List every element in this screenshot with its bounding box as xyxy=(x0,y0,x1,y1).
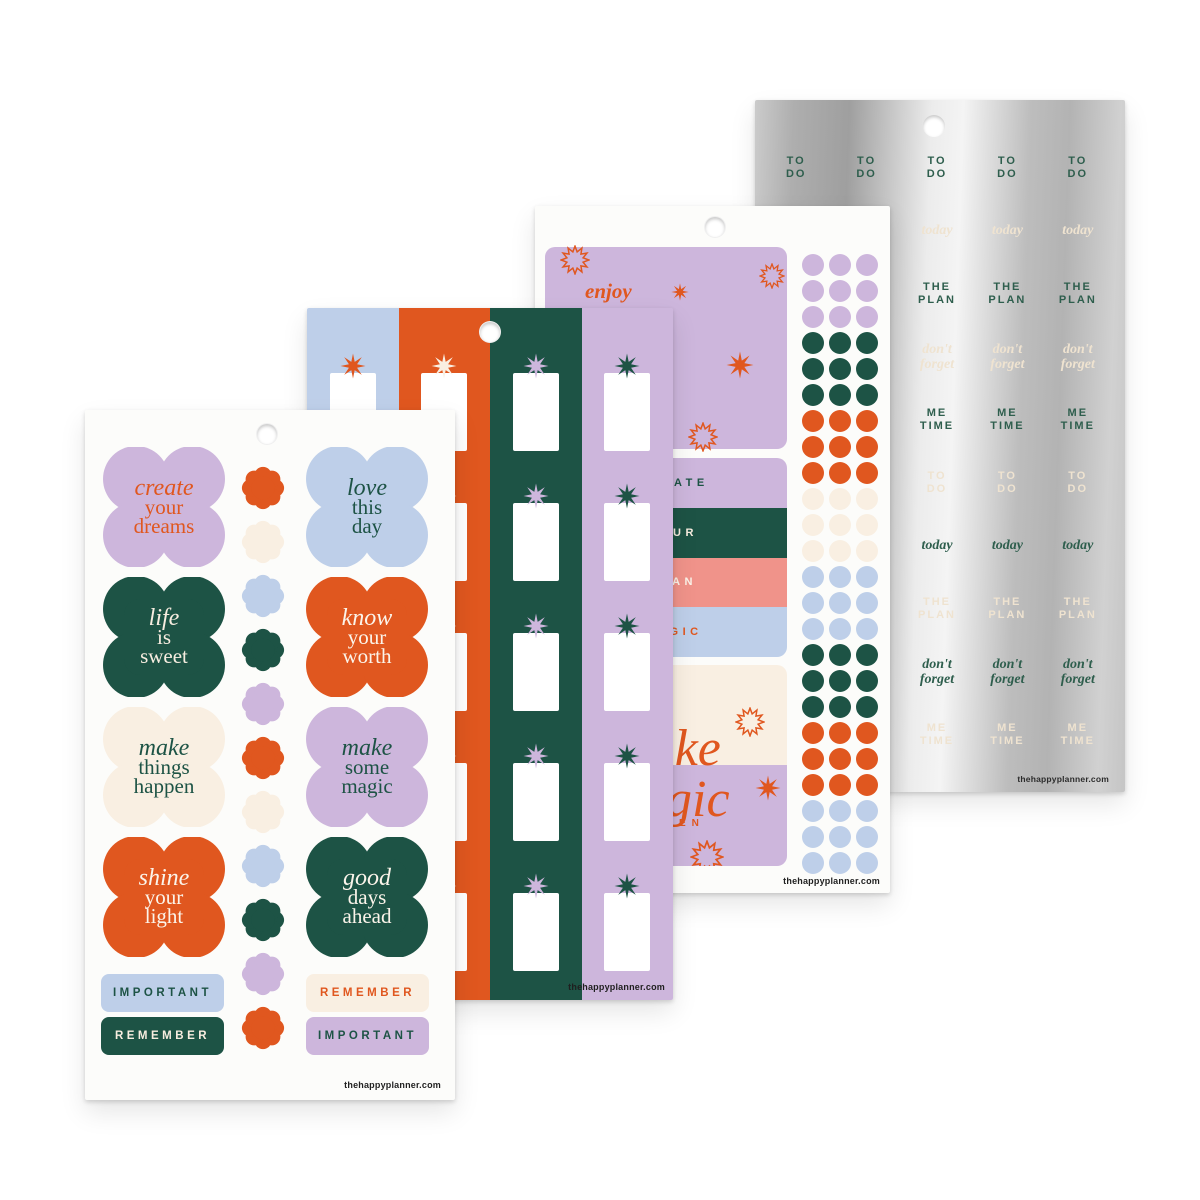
dot-sticker xyxy=(802,852,824,874)
label-sticker: IMPORTANT xyxy=(101,974,224,1012)
burst-outline-icon xyxy=(759,263,785,289)
starburst-icon xyxy=(523,483,549,509)
starburst-icon xyxy=(614,873,640,899)
sticker-sheet-quotes: createyourdreams lovethisday lifeissweet… xyxy=(85,410,455,1100)
dot-sticker xyxy=(802,644,824,666)
dot-sticker xyxy=(856,800,878,822)
checklist-box xyxy=(604,893,650,971)
dot-sticker xyxy=(856,774,878,796)
dot-sticker xyxy=(829,306,851,328)
punch-hole xyxy=(479,321,501,343)
foil-label: today xyxy=(921,538,952,553)
flower-icon xyxy=(241,466,285,510)
dot-sticker xyxy=(829,696,851,718)
foil-label: don'tforget xyxy=(920,342,954,372)
dot-sticker xyxy=(856,670,878,692)
foil-label: TODO xyxy=(1068,470,1089,496)
dot-sticker xyxy=(802,774,824,796)
dot-sticker xyxy=(829,358,851,380)
checklist-box xyxy=(604,503,650,581)
dot-sticker xyxy=(829,748,851,770)
checklist-box xyxy=(604,373,650,451)
foil-label: TODO xyxy=(786,155,807,181)
dot-sticker xyxy=(829,800,851,822)
dot-sticker xyxy=(802,358,824,380)
dot-sticker xyxy=(802,332,824,354)
foil-label: today xyxy=(1062,223,1093,238)
brand-url: thehappyplanner.com xyxy=(1017,774,1109,784)
foil-label: TODO xyxy=(1068,155,1089,181)
dot-sticker xyxy=(802,696,824,718)
dot-sticker xyxy=(856,722,878,744)
dot-sticker xyxy=(829,592,851,614)
flower-icon xyxy=(241,628,285,672)
quote-sticker: shineyourlight xyxy=(102,837,226,957)
foil-label: METIME xyxy=(920,407,954,433)
dot-sticker xyxy=(829,488,851,510)
dot-sticker xyxy=(856,748,878,770)
dot-sticker xyxy=(802,488,824,510)
dot-sticker xyxy=(856,410,878,432)
flower-icon xyxy=(241,574,285,618)
starburst-icon xyxy=(523,613,549,639)
checklist-box xyxy=(604,633,650,711)
foil-label: today xyxy=(1062,538,1093,553)
foil-label: don'tforget xyxy=(990,657,1024,687)
starburst-icon xyxy=(614,743,640,769)
dot-sticker xyxy=(829,566,851,588)
foil-label: today xyxy=(921,223,952,238)
checklist-box xyxy=(513,633,559,711)
burst-outline-icon xyxy=(688,422,718,452)
dot-sticker xyxy=(802,540,824,562)
dot-sticker xyxy=(802,280,824,302)
foil-label: METIME xyxy=(990,407,1024,433)
brand-url: thehappyplanner.com xyxy=(783,876,880,886)
dot-sticker xyxy=(856,384,878,406)
punch-hole xyxy=(923,115,945,137)
foil-label: TODO xyxy=(927,470,948,496)
dot-sticker xyxy=(856,514,878,536)
flower-column xyxy=(241,466,285,1066)
foil-label: today xyxy=(992,538,1023,553)
dot-sticker xyxy=(802,514,824,536)
dot-sticker xyxy=(802,436,824,458)
dot-sticker xyxy=(829,774,851,796)
starburst-icon xyxy=(523,743,549,769)
dot-sticker xyxy=(829,670,851,692)
dot-sticker xyxy=(856,852,878,874)
dot-sticker xyxy=(802,306,824,328)
foil-label: THEPLAN xyxy=(1059,281,1097,307)
dot-sticker xyxy=(856,618,878,640)
quote-sticker: makethingshappen xyxy=(102,707,226,827)
dot-sticker xyxy=(829,436,851,458)
starburst-icon xyxy=(431,353,457,379)
dot-sticker xyxy=(856,280,878,302)
dot-sticker xyxy=(829,514,851,536)
label-sticker: REMEMBER xyxy=(306,974,429,1012)
dot-sticker xyxy=(856,540,878,562)
label-sticker: IMPORTANT xyxy=(306,1017,429,1055)
checklist-box xyxy=(513,893,559,971)
dot-sticker xyxy=(802,826,824,848)
color-band xyxy=(490,308,582,1000)
dot-sticker xyxy=(802,618,824,640)
punch-hole xyxy=(704,216,726,238)
checklist-box xyxy=(513,763,559,841)
dot-sticker xyxy=(829,722,851,744)
foil-label: METIME xyxy=(920,722,954,748)
dot-sticker xyxy=(802,462,824,484)
foil-label: THEPLAN xyxy=(988,596,1026,622)
starburst-icon xyxy=(340,353,366,379)
foil-label: TODO xyxy=(997,155,1018,181)
quote-sticker: lovethisday xyxy=(305,447,429,567)
dot-sticker xyxy=(829,280,851,302)
dot-sticker xyxy=(802,384,824,406)
dot-sticker xyxy=(856,306,878,328)
foil-label: THEPLAN xyxy=(918,596,956,622)
starburst-icon xyxy=(726,351,754,379)
dot-sticker xyxy=(856,696,878,718)
dot-sticker xyxy=(829,826,851,848)
dot-sticker xyxy=(829,618,851,640)
foil-label: THEPLAN xyxy=(988,281,1026,307)
flower-icon xyxy=(241,844,285,888)
dot-sticker xyxy=(856,358,878,380)
dot-sticker xyxy=(829,644,851,666)
dot-sticker xyxy=(802,410,824,432)
foil-label: TODO xyxy=(997,470,1018,496)
dot-sticker xyxy=(856,462,878,484)
dot-sticker xyxy=(829,254,851,276)
foil-label: THEPLAN xyxy=(918,281,956,307)
punch-hole xyxy=(256,423,278,445)
starburst-icon xyxy=(614,483,640,509)
burst-outline-icon xyxy=(560,245,590,275)
foil-label: TODO xyxy=(856,155,877,181)
foil-label: don'tforget xyxy=(990,342,1024,372)
dot-sticker xyxy=(829,410,851,432)
quote-sticker: knowyourworth xyxy=(305,577,429,697)
dot-sticker xyxy=(856,488,878,510)
flower-icon xyxy=(241,1006,285,1050)
flower-icon xyxy=(241,682,285,726)
dot-sticker xyxy=(829,852,851,874)
starburst-icon xyxy=(671,283,689,301)
flower-icon xyxy=(241,790,285,834)
dot-sticker xyxy=(802,670,824,692)
foil-label: today xyxy=(992,223,1023,238)
flower-icon xyxy=(241,952,285,996)
flower-icon xyxy=(241,898,285,942)
dot-sticker xyxy=(829,462,851,484)
foil-label: don'tforget xyxy=(1061,342,1095,372)
foil-label: TODO xyxy=(927,155,948,181)
dot-sticker xyxy=(856,566,878,588)
quote-sticker: gooddaysahead xyxy=(305,837,429,957)
dot-sticker xyxy=(856,436,878,458)
starburst-icon xyxy=(614,353,640,379)
enjoy-text: enjoy xyxy=(585,279,632,304)
dot-sticker xyxy=(802,254,824,276)
checklist-box xyxy=(513,503,559,581)
dot-sticker xyxy=(802,722,824,744)
dot-sticker xyxy=(802,592,824,614)
foil-label: METIME xyxy=(1061,407,1095,433)
dot-sticker xyxy=(802,748,824,770)
foil-label: don'tforget xyxy=(920,657,954,687)
dot-sticker xyxy=(829,332,851,354)
brand-url: thehappyplanner.com xyxy=(568,982,665,992)
color-band xyxy=(582,308,674,1000)
burst-outline-icon xyxy=(690,840,724,866)
dot-sticker xyxy=(829,540,851,562)
foil-label: METIME xyxy=(990,722,1024,748)
label-sticker: REMEMBER xyxy=(101,1017,224,1055)
foil-label: METIME xyxy=(1061,722,1095,748)
checklist-box xyxy=(604,763,650,841)
dot-sticker-grid xyxy=(799,252,880,876)
dot-sticker xyxy=(802,566,824,588)
dot-sticker xyxy=(856,826,878,848)
foil-label: don'tforget xyxy=(1061,657,1095,687)
quote-sticker: makesomemagic xyxy=(305,707,429,827)
dot-sticker xyxy=(856,644,878,666)
starburst-icon xyxy=(614,613,640,639)
foil-label: THEPLAN xyxy=(1059,596,1097,622)
flower-icon xyxy=(241,520,285,564)
dot-sticker xyxy=(802,800,824,822)
dot-sticker xyxy=(856,592,878,614)
quote-sticker: createyourdreams xyxy=(102,447,226,567)
starburst-icon xyxy=(523,353,549,379)
flower-icon xyxy=(241,736,285,780)
brand-url: thehappyplanner.com xyxy=(344,1080,441,1090)
starburst-icon xyxy=(523,873,549,899)
dot-sticker xyxy=(856,254,878,276)
dot-sticker xyxy=(829,384,851,406)
checklist-box xyxy=(513,373,559,451)
dot-sticker xyxy=(856,332,878,354)
quote-sticker: lifeissweet xyxy=(102,577,226,697)
